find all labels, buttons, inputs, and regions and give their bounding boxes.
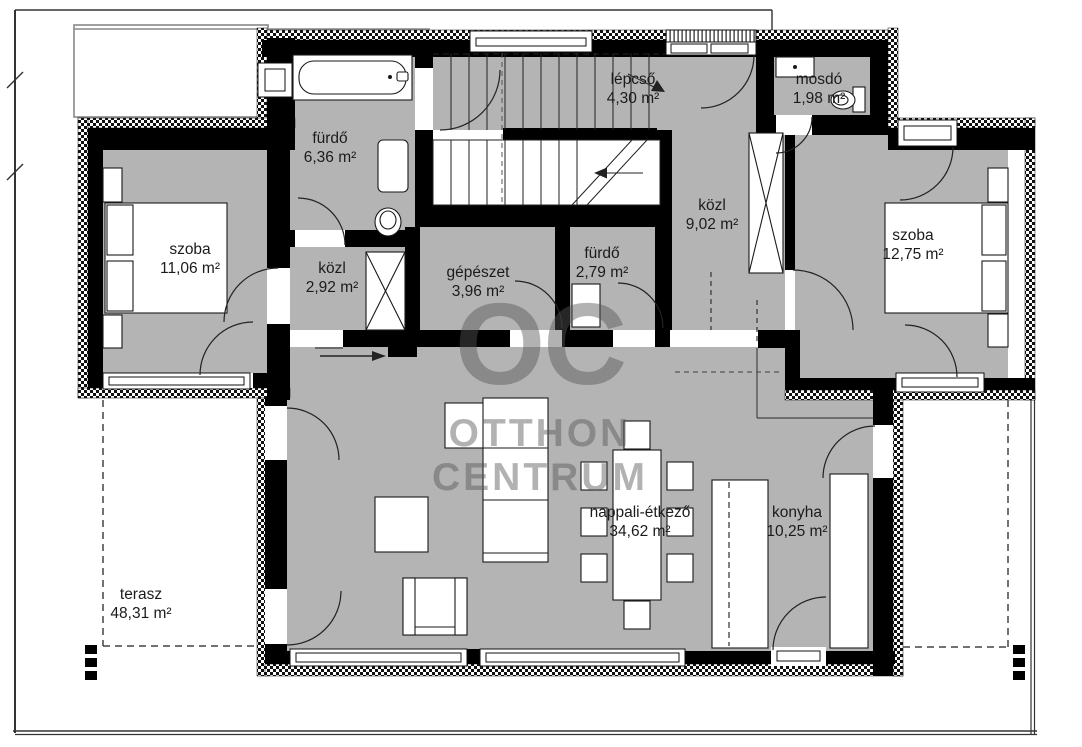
- coffee-table: [375, 497, 428, 552]
- cabinet: [366, 252, 405, 330]
- shower-tray-bath2: [572, 284, 600, 327]
- toilet-bathroom: [375, 208, 401, 236]
- shower-cabinet: [378, 140, 408, 192]
- bathtub: [293, 55, 412, 100]
- wardrobe: [749, 133, 783, 273]
- floorplan-page: OC OTTHON CENTRUM szoba11,06 m²fürdő6,36…: [0, 0, 1082, 747]
- washbasin-mosdo: [776, 57, 814, 77]
- floorplan-drawing: [0, 0, 1082, 747]
- armchair: [403, 578, 467, 635]
